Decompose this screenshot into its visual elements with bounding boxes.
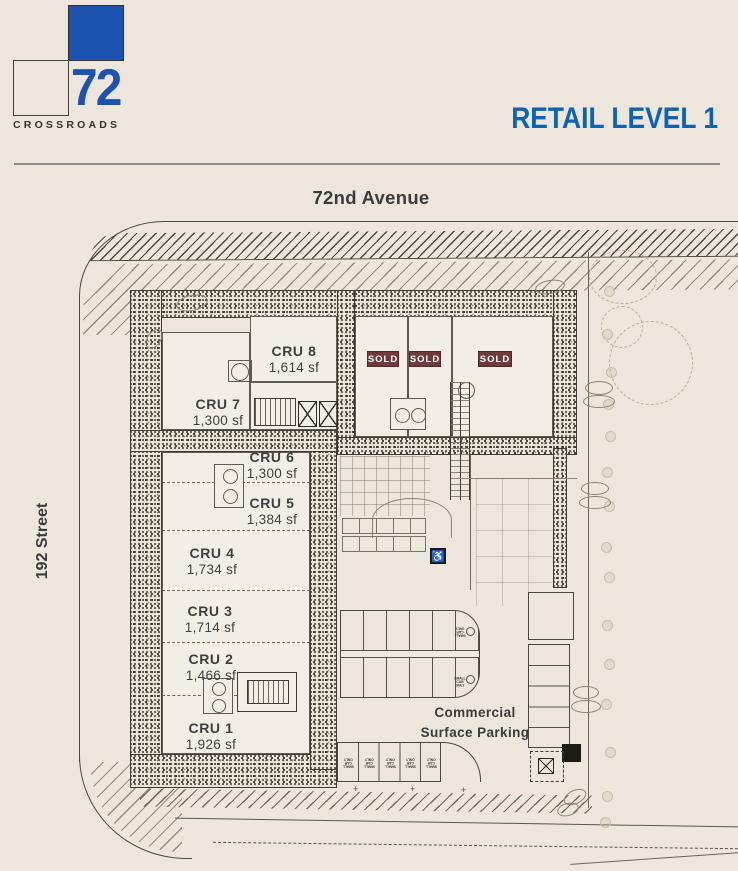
- elevation-marker: [573, 686, 599, 699]
- parking-stalls-east-column: [528, 644, 570, 748]
- unit-label-cru-4: CRU 41,734 sf: [157, 545, 267, 577]
- sold-badge: SOLD: [409, 351, 441, 367]
- walkway-wall-line: [470, 455, 471, 590]
- shrub-marker: [605, 431, 616, 442]
- shrub-marker: [605, 747, 616, 758]
- elevator-icon: [298, 401, 317, 427]
- unit-label-cru-6: CRU 61,300 sf: [217, 449, 327, 481]
- stairs-icon: [247, 680, 289, 704]
- accessible-parking-icon: ♿: [430, 548, 446, 564]
- ramp: [450, 382, 470, 500]
- elevator-shaft-dashed: [530, 751, 564, 782]
- retail-level-1-plan-page: 72 CROSSROADS RETAIL LEVEL 1 72nd Avenue…: [0, 0, 738, 871]
- demising-line: [162, 590, 310, 591]
- site-plan: ♿ SMALL CAR ONLY SMALL CAR ONLY Commerci…: [0, 0, 738, 871]
- survey-cross-marker: +: [410, 785, 415, 794]
- parking-stall-small-car: SMALL CAR ONLY: [380, 744, 400, 780]
- wall-east-upper: [553, 290, 577, 438]
- shrub-marker: [466, 675, 475, 684]
- shrub-marker: [602, 329, 613, 340]
- paved-court-grid: [476, 478, 552, 606]
- shrub-marker: [602, 620, 613, 631]
- elevation-marker: [583, 395, 615, 408]
- unit-label-cru-2: CRU 21,466 sf: [156, 651, 266, 683]
- fixture-icon: [395, 408, 410, 423]
- fixture-icon: [212, 682, 226, 696]
- parking-aisle-line: [341, 650, 480, 658]
- unit-label-cru-3: CRU 31,714 sf: [155, 603, 265, 635]
- property-line-east: [588, 252, 589, 808]
- parking-stall-small-car: SMALL CAR ONLY: [421, 744, 441, 780]
- elevation-marker: [585, 381, 613, 395]
- survey-cross-marker: +: [353, 785, 358, 794]
- elevator-icon: [319, 401, 338, 427]
- sidewalk-hatch-band-bottom: [140, 788, 592, 813]
- road-centerline-bottom: [213, 842, 738, 849]
- elevation-marker: [579, 496, 611, 509]
- washroom-pod: [203, 678, 233, 714]
- washroom-pod: [390, 398, 426, 430]
- shrub-marker: [604, 572, 615, 583]
- parking-stall-small-car: SMALL CAR ONLY: [359, 744, 379, 780]
- shrub-marker: [604, 286, 615, 297]
- wall-west: [130, 290, 162, 788]
- wall-south: [130, 754, 337, 788]
- elevator-icon: [538, 758, 554, 774]
- shrub-marker: [602, 791, 613, 802]
- wall-east-lower: [553, 448, 567, 588]
- demising-line: [162, 530, 310, 531]
- shrub-marker: [606, 367, 617, 378]
- unit-label-cru-1: CRU 11,926 sf: [156, 720, 266, 752]
- survey-cross-marker: +: [461, 786, 466, 795]
- road-edge-line-bottom: [175, 818, 738, 828]
- elevation-marker: [581, 482, 609, 495]
- elevation-marker: [571, 700, 601, 713]
- shrub-marker: [602, 467, 613, 478]
- bike-racks: [342, 536, 426, 552]
- utility-block: [562, 744, 581, 762]
- demising-line: [162, 642, 310, 643]
- fixture-icon: [212, 699, 226, 713]
- parking-stall-small-car: SMALL CAR ONLY: [400, 744, 420, 780]
- unit-label-cru-8: CRU 81,614 sf: [239, 343, 349, 375]
- tree-canopy: [589, 250, 657, 304]
- loading-area: [528, 592, 574, 640]
- fixture-icon: [411, 408, 426, 423]
- road-diagonal-line: [570, 852, 738, 865]
- tree-canopy: [609, 321, 693, 405]
- sold-badge: SOLD: [478, 351, 512, 367]
- bike-racks: [342, 518, 426, 534]
- shrub-marker: [601, 699, 612, 710]
- parking-stall-small-car: SMALL CAR ONLY: [338, 744, 358, 780]
- shrub-marker: [466, 627, 475, 636]
- shrub-marker: [600, 817, 611, 828]
- unit-label-cru-7: CRU 71,300 sf: [163, 396, 273, 428]
- shrub-marker: [601, 542, 612, 553]
- sold-badge: SOLD: [367, 351, 399, 367]
- shrub-marker: [604, 659, 615, 670]
- unit-label-cru-5: CRU 51,384 sf: [217, 495, 327, 527]
- wall-mid-vertical: [310, 430, 337, 770]
